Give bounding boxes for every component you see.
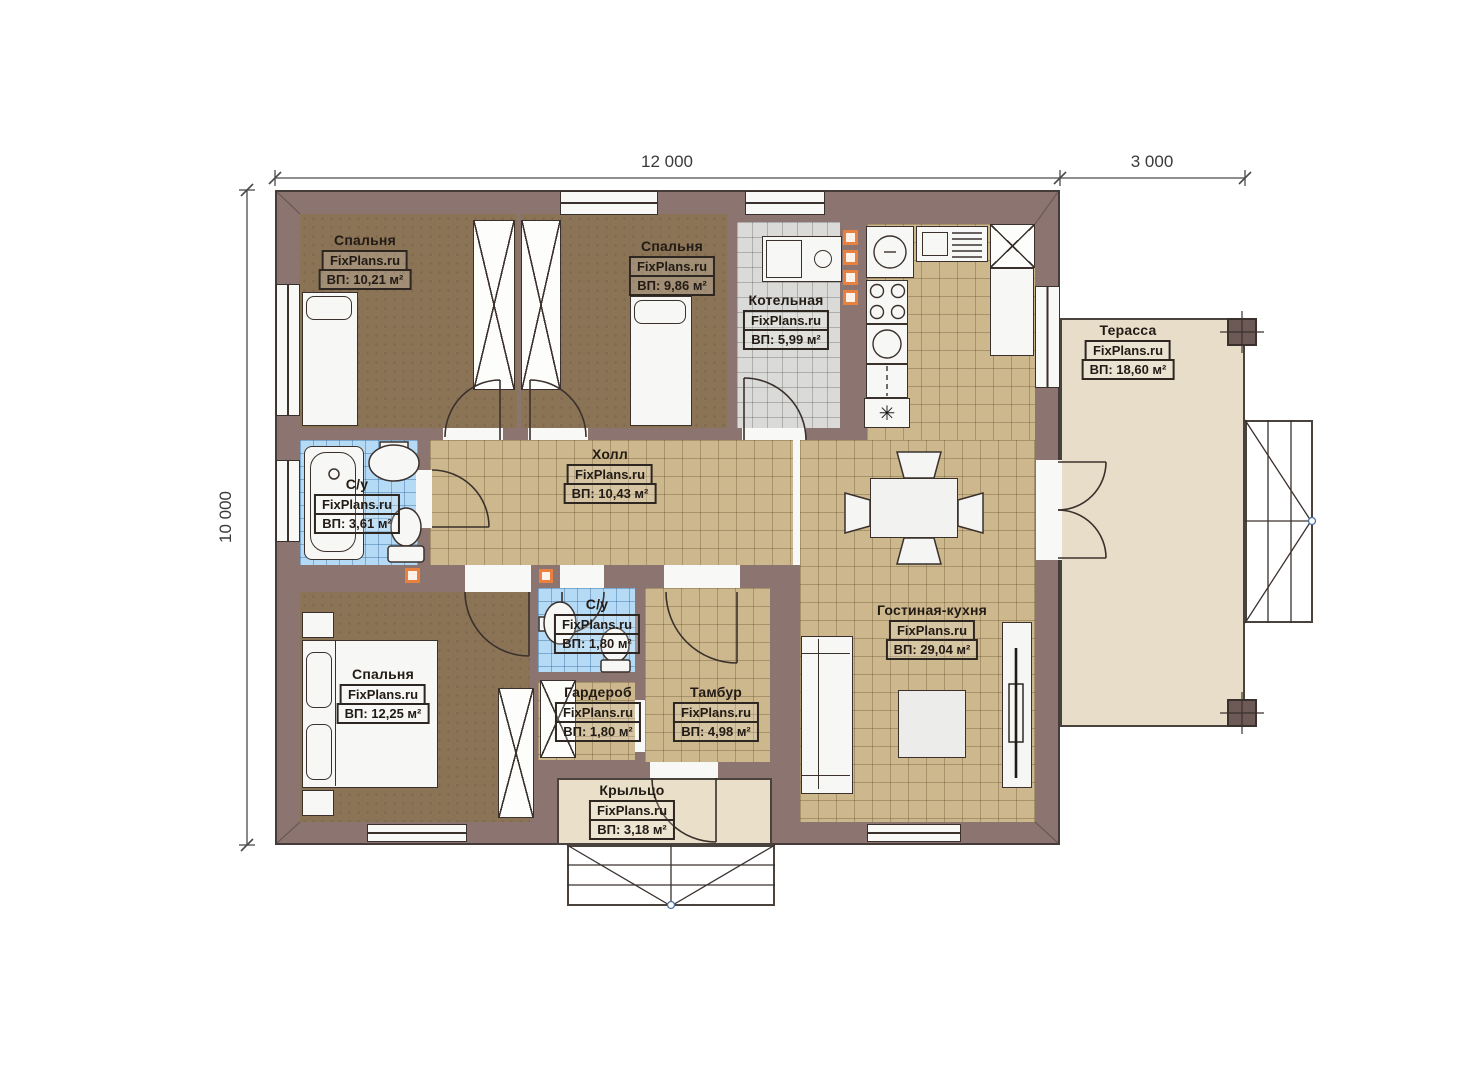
brand-label: FixPlans.ru	[554, 614, 640, 635]
door-opening-bedroom-tl	[443, 428, 503, 440]
brand-label: FixPlans.ru	[743, 310, 829, 331]
brand-label: FixPlans.ru	[1085, 340, 1171, 361]
room-area: ВП: 4,98 м²	[673, 721, 759, 742]
room-label-bathroom-small: С/у FixPlans.ru ВП: 1,80 м²	[554, 596, 640, 654]
room-area: ВП: 12,25 м²	[337, 703, 430, 724]
room-area: ВП: 29,04 м²	[886, 639, 979, 660]
room-label-bathroom-main: С/у FixPlans.ru ВП: 3,61 м²	[314, 476, 400, 534]
washing-machine	[866, 226, 914, 278]
room-name: Крыльцо	[599, 782, 664, 798]
window-top-bedroom	[560, 191, 658, 215]
brand-label: FixPlans.ru	[567, 464, 653, 485]
room-label-boiler: Котельная FixPlans.ru ВП: 5,99 м²	[743, 292, 829, 350]
pillow	[634, 300, 686, 324]
dishwasher	[866, 364, 908, 398]
room-area: ВП: 5,99 м²	[743, 329, 829, 350]
pillow	[306, 724, 332, 780]
kitchen-round-sink	[866, 324, 908, 364]
room-area: ВП: 10,21 м²	[319, 269, 412, 290]
nightstand	[302, 612, 334, 638]
heating-vent	[843, 270, 858, 285]
dimension-terrace-width: 3 000	[1131, 152, 1174, 172]
sofa	[801, 636, 853, 794]
window-left-bedroom	[276, 284, 300, 416]
brand-label: FixPlans.ru	[555, 702, 641, 723]
sofa-back-line	[818, 639, 819, 789]
room-area: ВП: 18,60 м²	[1082, 359, 1175, 380]
tall-cabinet	[990, 268, 1034, 356]
room-label-wardrobe: Гардероб FixPlans.ru ВП: 1,80 м²	[555, 684, 641, 742]
room-name: Спальня	[352, 666, 414, 682]
dining-table	[870, 478, 958, 538]
terrace-post-top	[1227, 318, 1257, 346]
door-opening-terrace	[1036, 460, 1062, 560]
wardrobe-cabinet	[473, 220, 515, 390]
wall-vent	[405, 568, 420, 583]
wardrobe-cabinet	[521, 220, 561, 390]
terrace-post-bottom	[1227, 699, 1257, 727]
brand-label: FixPlans.ru	[889, 620, 975, 641]
coffee-table	[898, 690, 966, 758]
room-area: ВП: 1,80 м²	[554, 633, 640, 654]
pillow	[306, 652, 332, 708]
room-label-bedroom-top-middle: Спальня FixPlans.ru ВП: 9,86 м²	[629, 238, 715, 296]
room-name: Тамбур	[690, 684, 742, 700]
heating-vent	[843, 290, 858, 305]
door-opening-bathroom-main	[416, 470, 432, 528]
door-opening-bedroom-bl	[465, 565, 531, 592]
window-left-bathroom	[276, 460, 300, 542]
window-right-kitchen	[1035, 286, 1060, 388]
door-opening-bathroom-small	[560, 565, 604, 588]
room-area: ВП: 9,86 м²	[629, 275, 715, 296]
boiler-panel	[766, 240, 802, 278]
room-name: Терасса	[1100, 322, 1157, 338]
hvac-unit: ✳	[864, 398, 910, 428]
room-label-vestibule: Тамбур FixPlans.ru ВП: 4,98 м²	[673, 684, 759, 742]
room-name: С/у	[586, 596, 608, 612]
door-opening-vestibule	[664, 565, 740, 588]
room-label-terrace: Терасса FixPlans.ru ВП: 18,60 м²	[1082, 322, 1175, 380]
boiler-dial	[814, 250, 832, 268]
wardrobe-cabinet	[498, 688, 534, 818]
room-label-hall: Холл FixPlans.ru ВП: 10,43 м²	[564, 446, 657, 504]
dimension-left-height: 10 000	[216, 491, 236, 543]
window-top-boiler	[745, 191, 825, 215]
brand-label: FixPlans.ru	[673, 702, 759, 723]
sofa-arm-line	[802, 775, 850, 776]
heating-vent	[843, 250, 858, 265]
room-label-porch: Крыльцо FixPlans.ru ВП: 3,18 м²	[589, 782, 675, 840]
brand-label: FixPlans.ru	[589, 800, 675, 821]
refrigerator	[990, 224, 1035, 268]
floor-plan: 12 000 3 000 10 000	[0, 0, 1473, 1080]
stove	[866, 280, 908, 324]
room-name: Котельная	[748, 292, 823, 308]
room-area: ВП: 3,18 м²	[589, 819, 675, 840]
room-name: Гардероб	[564, 684, 632, 700]
hall-living-threshold	[793, 440, 800, 565]
terrace-stairs	[1245, 420, 1313, 623]
tv-stand	[1002, 622, 1032, 788]
sofa-arm-line	[802, 653, 850, 654]
door-opening-entrance	[650, 762, 718, 778]
door-opening-boiler	[742, 428, 806, 440]
brand-label: FixPlans.ru	[340, 684, 426, 705]
room-area: ВП: 1,80 м²	[555, 721, 641, 742]
room-name: Спальня	[334, 232, 396, 248]
room-name: С/у	[346, 476, 368, 492]
door-opening-bedroom-tm	[528, 428, 588, 440]
brand-label: FixPlans.ru	[322, 250, 408, 271]
room-name: Спальня	[641, 238, 703, 254]
room-area: ВП: 3,61 м²	[314, 513, 400, 534]
window-bottom-living	[867, 824, 961, 842]
porch-stairs	[567, 845, 775, 906]
room-area: ВП: 10,43 м²	[564, 483, 657, 504]
window-bottom-bedroom	[367, 824, 467, 842]
room-label-living-kitchen: Гостиная-кухня FixPlans.ru ВП: 29,04 м²	[877, 602, 987, 660]
room-name: Гостиная-кухня	[877, 602, 987, 618]
brand-label: FixPlans.ru	[629, 256, 715, 277]
sink-basin	[922, 232, 948, 256]
dimension-top-width: 12 000	[641, 152, 693, 172]
heating-vent	[843, 230, 858, 245]
room-name: Холл	[592, 446, 628, 462]
nightstand	[302, 790, 334, 816]
room-label-bedroom-top-left: Спальня FixPlans.ru ВП: 10,21 м²	[319, 232, 412, 290]
brand-label: FixPlans.ru	[314, 494, 400, 515]
wall-vent	[539, 569, 553, 583]
pillow	[306, 296, 352, 320]
room-label-bedroom-bottom-left: Спальня FixPlans.ru ВП: 12,25 м²	[337, 666, 430, 724]
